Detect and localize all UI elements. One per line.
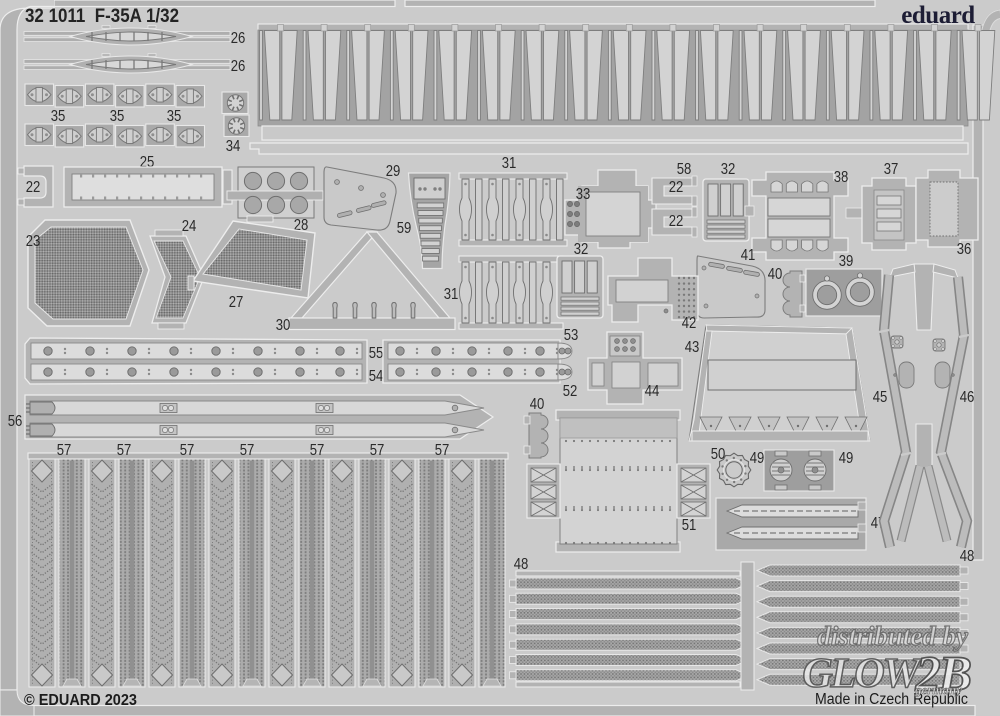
svg-text:50: 50 (711, 446, 726, 463)
svg-text:46: 46 (960, 389, 975, 406)
svg-text:35: 35 (51, 108, 66, 125)
svg-text:29: 29 (386, 163, 401, 180)
svg-text:53: 53 (564, 327, 579, 344)
svg-text:57: 57 (117, 442, 132, 459)
svg-text:32: 32 (721, 161, 736, 178)
svg-text:26: 26 (231, 30, 246, 47)
svg-text:35: 35 (110, 108, 125, 125)
svg-text:24: 24 (182, 218, 197, 235)
svg-text:35: 35 (167, 108, 182, 125)
svg-text:44: 44 (645, 383, 660, 400)
svg-text:54: 54 (369, 368, 384, 385)
svg-text:22: 22 (26, 179, 41, 196)
svg-text:32 1011 F-35A 1/32: 32 1011 F-35A 1/32 (25, 6, 179, 27)
svg-text:58: 58 (677, 161, 692, 178)
svg-text:42: 42 (682, 315, 697, 332)
svg-text:40: 40 (768, 266, 783, 283)
svg-text:38: 38 (834, 169, 849, 186)
svg-text:52: 52 (563, 383, 578, 400)
svg-text:27: 27 (229, 294, 244, 311)
svg-text:germany: germany (914, 682, 962, 697)
svg-text:49: 49 (839, 450, 854, 467)
svg-text:31: 31 (444, 286, 459, 303)
svg-text:41: 41 (741, 247, 756, 264)
svg-text:39: 39 (839, 253, 854, 270)
svg-text:37: 37 (884, 161, 899, 178)
svg-text:31: 31 (502, 155, 517, 172)
svg-text:55: 55 (369, 345, 384, 362)
svg-text:56: 56 (8, 413, 23, 430)
svg-text:40: 40 (530, 396, 545, 413)
svg-text:48: 48 (514, 556, 529, 573)
svg-text:48: 48 (960, 548, 975, 565)
svg-text:43: 43 (685, 339, 700, 356)
svg-text:49: 49 (750, 450, 765, 467)
svg-text:51: 51 (682, 517, 697, 534)
svg-text:22: 22 (669, 213, 684, 230)
svg-text:32: 32 (574, 241, 589, 258)
svg-text:36: 36 (957, 241, 972, 258)
svg-text:33: 33 (576, 186, 591, 203)
svg-text:57: 57 (310, 442, 325, 459)
svg-text:57: 57 (57, 442, 72, 459)
svg-text:23: 23 (26, 233, 41, 250)
svg-text:57: 57 (370, 442, 385, 459)
svg-text:57: 57 (180, 442, 195, 459)
svg-text:57: 57 (435, 442, 450, 459)
svg-text:22: 22 (669, 179, 684, 196)
svg-text:26: 26 (231, 58, 246, 75)
svg-text:57: 57 (240, 442, 255, 459)
svg-text:59: 59 (397, 220, 412, 237)
svg-text:© EDUARD 2023: © EDUARD 2023 (24, 692, 137, 709)
svg-text:45: 45 (873, 389, 888, 406)
svg-text:30: 30 (276, 317, 291, 334)
svg-text:GLOW: GLOW (802, 651, 922, 697)
svg-text:34: 34 (226, 138, 241, 155)
